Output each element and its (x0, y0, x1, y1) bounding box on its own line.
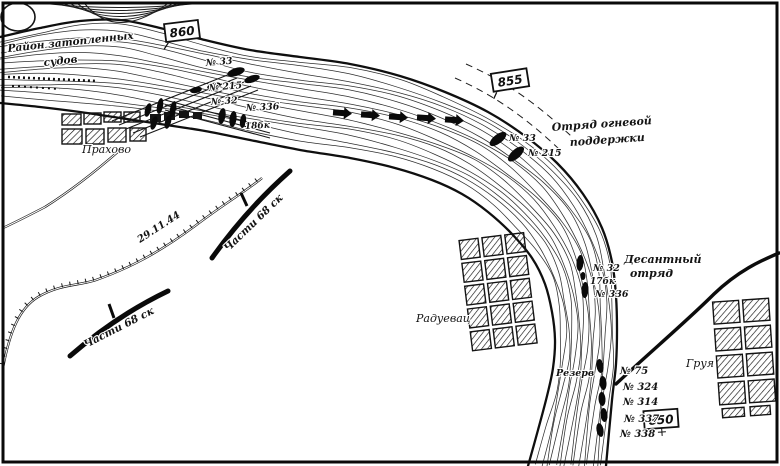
historical-map: 860 855 850 Район затопленных судов Прах… (0, 0, 780, 466)
label-reserve: Резерв (555, 368, 594, 379)
label-village-gruya: Груя (685, 357, 714, 370)
ship-markers-reserve (595, 359, 608, 438)
ship-markers-landing (576, 255, 589, 298)
label-sunken-area-2: судов (43, 53, 78, 68)
map-canvas: 860 855 850 Район затопленных судов Прах… (0, 0, 780, 466)
label-ship-fs-215: № 215 (527, 148, 562, 159)
label-ship-landing-17bk: 17бк (590, 276, 616, 287)
road-southwest (3, 150, 120, 228)
label-village-prahovo: Прахово (81, 143, 131, 156)
label-ship-res-75: № 75 (619, 366, 648, 377)
village-gruya-blocks (713, 298, 777, 418)
label-ship-port-18bk: 18бк (245, 120, 272, 132)
label-ship-res-337: № 337 (623, 414, 659, 425)
label-front-units-lower: Части 68 ск (82, 305, 157, 351)
label-sunken-area-1: Район затопленных (6, 29, 135, 55)
headland-contours (1, 3, 192, 31)
label-ship-fs-33: № 33 (508, 133, 536, 144)
label-landing-2: отряд (630, 267, 673, 280)
label-ship-res-324: № 324 (622, 382, 658, 393)
map-labels: Район затопленных судов Прахово Радуевац… (6, 29, 714, 440)
label-landing-1: Десантный (623, 253, 701, 266)
label-village-raduevac: Радуевац (415, 312, 471, 325)
label-ship-res-314: № 314 (622, 397, 658, 408)
km-marker-860: 860 (161, 20, 201, 49)
label-ship-port-215: № 215 (207, 80, 243, 94)
label-ship-res-338: № 338 (619, 429, 655, 440)
map-frame (3, 3, 777, 462)
village-raduevac-blocks (459, 233, 537, 351)
label-ship-landing-336: № 336 (594, 289, 629, 300)
lake (1, 3, 35, 31)
label-ship-landing-32: № 32 (592, 263, 620, 274)
km-marker-855: 855 (490, 68, 530, 98)
label-fire-support-2: поддержки (569, 131, 645, 149)
label-ship-port-32: № 32 (209, 95, 238, 108)
label-ship-port-336: № 336 (245, 101, 280, 114)
front-line-ticked (0, 178, 262, 368)
